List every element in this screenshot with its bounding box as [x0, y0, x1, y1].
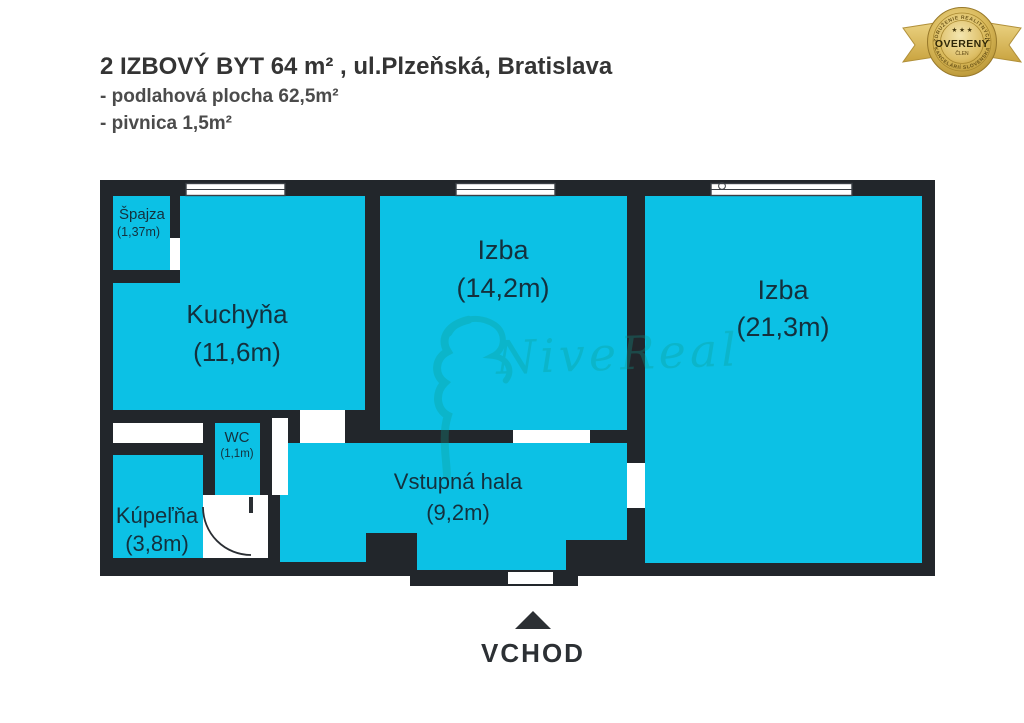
label-kuchyna-name: Kuchyňa: [186, 299, 288, 329]
window-icon-izba-2: [711, 183, 852, 196]
watermark-text: NiveReal: [494, 322, 741, 385]
label-izba-1-name: Izba: [477, 235, 529, 265]
label-izba-2-name: Izba: [757, 275, 809, 305]
label-izba-1-area: (14,2m): [456, 273, 549, 303]
floorplan-canvas: 2 IZBOVÝ BYT 64 m² , ul.Plzeňská, Bratis…: [0, 0, 1024, 723]
label-hala-name: Vstupná hala: [394, 469, 523, 494]
room-izba-2: [645, 196, 922, 563]
entrance-marker: VCHOD: [481, 611, 585, 668]
label-kupelna-name: Kúpeľňa: [116, 503, 199, 528]
subtitle-cellar: - pivnica 1,5m²: [100, 113, 232, 134]
verified-badge: ZDRUŽENIE REALITNÝCH KANCELÁRIÍ SLOVENSK…: [903, 8, 1021, 77]
entrance-arrow-icon: [515, 611, 551, 629]
window-icon-izba-1: [456, 184, 555, 196]
door-gap-wc: [272, 418, 288, 495]
room-izba-1: [380, 196, 627, 430]
label-spajza-name: Špajza: [119, 206, 166, 223]
door-gap-spajza: [170, 238, 180, 270]
door-gap-kuchyna: [300, 410, 345, 443]
door-swing-area: [203, 495, 268, 558]
badge-label: OVERENÝ: [935, 37, 989, 50]
label-wc-area: (1,1m): [220, 448, 253, 460]
label-hala-area: (9,2m): [426, 500, 490, 525]
label-kuchyna-area: (11,6m): [193, 337, 281, 367]
entrance-label: VCHOD: [481, 638, 585, 668]
label-kupelna-area: (3,8m): [125, 531, 189, 556]
door-gap-izba-1: [513, 430, 590, 443]
label-wc-name: WC: [225, 429, 250, 446]
corridor-bath: [113, 423, 203, 443]
badge-sublabel: ČLEN: [955, 50, 969, 57]
label-spajza-area: (1,37m): [117, 225, 160, 239]
badge-stars-icon: ★ ★ ★: [951, 26, 972, 34]
floorplan-page: 2 IZBOVÝ BYT 64 m² , ul.Plzeňská, Bratis…: [0, 0, 1024, 723]
door-gap-entrance: [508, 572, 553, 584]
door-gap-izba-2: [627, 463, 645, 508]
subtitle-floor-area: - podlahová plocha 62,5m²: [100, 86, 339, 107]
label-izba-2-area: (21,3m): [736, 312, 829, 342]
page-title: 2 IZBOVÝ BYT 64 m² , ul.Plzeňská, Bratis…: [100, 52, 613, 80]
window-icon-kuchyna: [186, 184, 285, 196]
header: 2 IZBOVÝ BYT 64 m² , ul.Plzeňská, Bratis…: [100, 52, 613, 134]
